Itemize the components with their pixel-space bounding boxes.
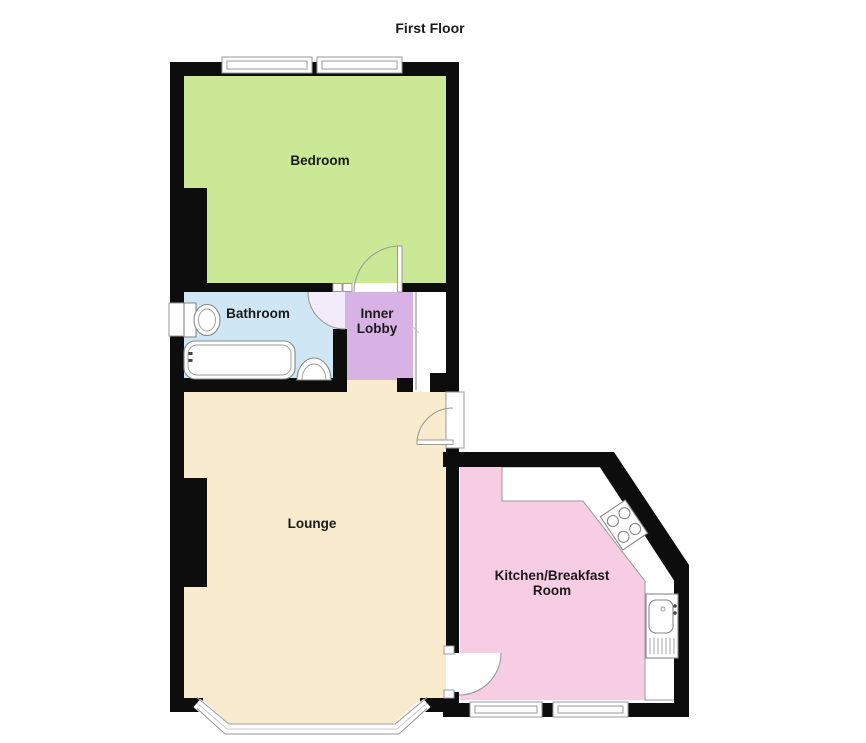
floor-plan: First Floor Bedroom Bathroom Inner Lobby… (0, 0, 866, 743)
plan-title: First Floor (395, 20, 465, 36)
bedroom-floor (184, 70, 446, 285)
inner-lobby-label-line2: Lobby (357, 321, 398, 336)
lounge-label: Lounge (288, 516, 337, 531)
toilet-icon (184, 303, 220, 337)
floor-plan-svg: First Floor Bedroom Bathroom Inner Lobby… (0, 0, 866, 743)
door-frame-mark (444, 646, 454, 654)
bathroom-window (169, 303, 184, 336)
lounge-floor (184, 380, 446, 702)
kitchen-doorway (446, 654, 459, 692)
inner-lobby-label-line1: Inner (360, 306, 394, 321)
bedroom-window (317, 57, 402, 73)
sink-unit-icon (646, 594, 678, 658)
kitchen-label-line2: Room (533, 583, 571, 598)
kitchen-label-line1: Kitchen/Breakfast (495, 568, 610, 583)
bedroom-label: Bedroom (290, 153, 349, 168)
door-frame-mark (343, 284, 352, 292)
door-frame-mark (333, 284, 342, 292)
bathtub-icon (184, 341, 295, 379)
kitchen-window (553, 702, 628, 717)
bedroom-window (222, 57, 312, 73)
kitchen-window (470, 702, 542, 717)
lounge-bay-floor (203, 700, 420, 723)
bathroom-label: Bathroom (226, 306, 290, 321)
door-frame-mark (444, 690, 454, 698)
bedroom-doorway (352, 283, 400, 292)
